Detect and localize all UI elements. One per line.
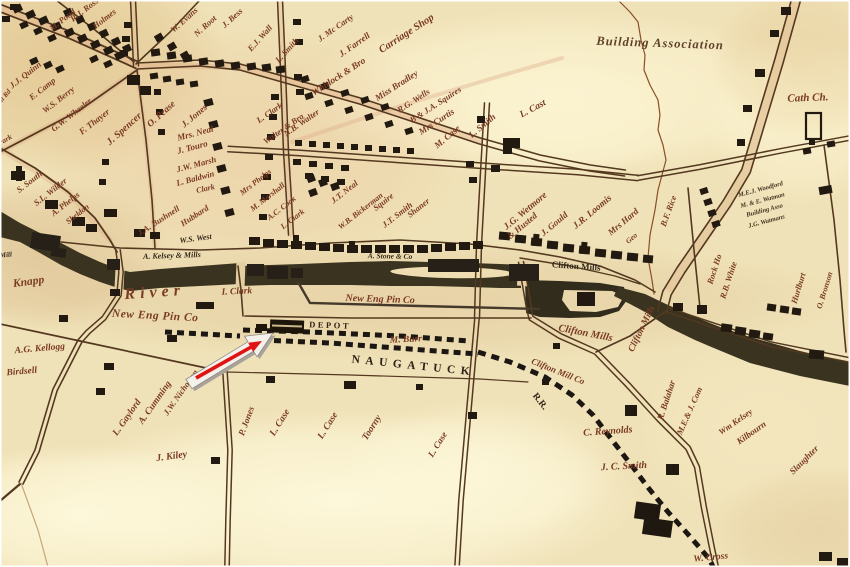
svg-text:Mill: Mill bbox=[0, 250, 12, 259]
svg-text:DEPOT: DEPOT bbox=[309, 319, 351, 330]
svg-text:I. Clark: I. Clark bbox=[220, 286, 252, 298]
svg-text:A. Stone & Co: A. Stone & Co bbox=[367, 251, 413, 261]
svg-text:M. Burr: M. Burr bbox=[389, 334, 423, 346]
svg-text:Cath Ch.: Cath Ch. bbox=[787, 91, 828, 104]
